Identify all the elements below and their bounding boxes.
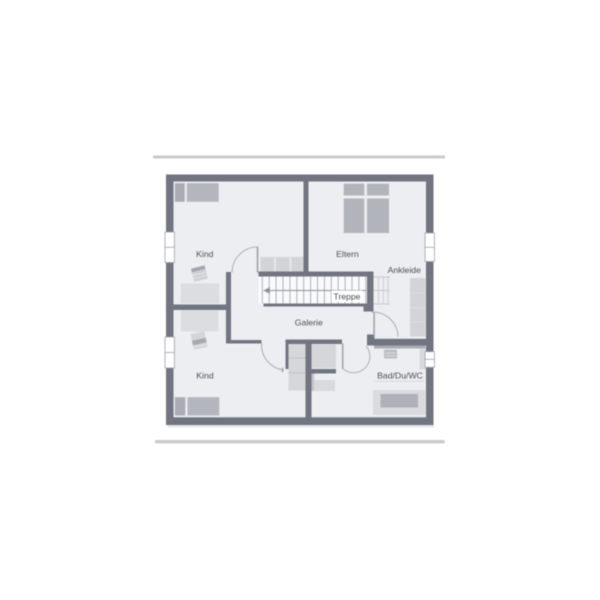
svg-text:Galerie: Galerie — [295, 318, 323, 328]
svg-text:Ankleide: Ankleide — [388, 265, 421, 275]
svg-text:Kind: Kind — [196, 370, 214, 380]
svg-text:Treppe: Treppe — [334, 291, 361, 301]
svg-text:Kind: Kind — [196, 249, 214, 259]
svg-text:Bad/Du/WC: Bad/Du/WC — [377, 371, 423, 381]
svg-text:Eltern: Eltern — [336, 249, 359, 259]
